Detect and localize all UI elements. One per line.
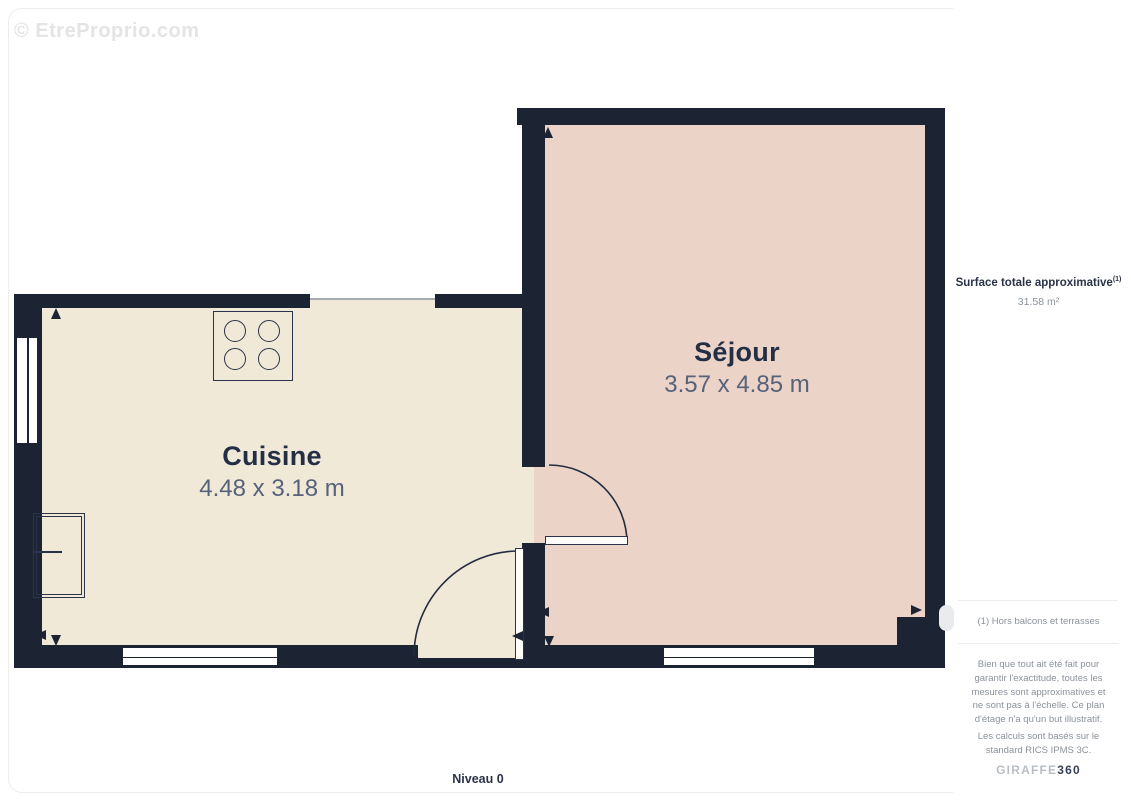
room-name: Séjour	[607, 337, 867, 368]
burner-icon	[258, 348, 280, 370]
wall-partition-lower	[522, 543, 545, 668]
door-threshold	[418, 658, 517, 668]
info-sidebar: Surface totale approximative(1) 31.58 m²…	[953, 8, 1124, 793]
door-leaf-icon	[515, 548, 524, 660]
footnote-ref: (1)	[1113, 276, 1122, 283]
marker-triangle-icon	[543, 127, 553, 138]
surface-total-label: Surface totale approximative(1)	[953, 276, 1124, 289]
wall-sejour-top	[517, 108, 945, 125]
window-icon	[663, 647, 815, 666]
level-label: Niveau 0	[0, 772, 956, 786]
room-label-sejour: Séjour 3.57 x 4.85 m	[607, 337, 867, 399]
appliance-handle-line	[33, 551, 62, 553]
marker-triangle-icon	[51, 635, 61, 646]
wall-kitchen-top-left	[14, 294, 310, 308]
marker-triangle-icon	[35, 630, 46, 640]
burner-icon	[224, 348, 246, 370]
burner-icon	[224, 320, 246, 342]
door-leaf-icon	[545, 536, 628, 545]
logo-text-360: 360	[1057, 763, 1081, 777]
marker-triangle-icon	[911, 605, 922, 615]
appliance-icon	[33, 513, 85, 598]
room-dimensions: 4.48 x 3.18 m	[142, 475, 402, 503]
surface-total-block: Surface totale approximative(1) 31.58 m²	[953, 276, 1124, 308]
disclaimer-text: Bien que tout ait été fait pour garantir…	[966, 658, 1111, 727]
marker-triangle-icon	[538, 607, 549, 617]
standards-text: Les calculs sont basés sur le standard R…	[966, 730, 1111, 758]
divider	[958, 643, 1118, 644]
sidebar-handle[interactable]	[939, 605, 954, 631]
wall-sejour-corner-notch	[897, 617, 945, 668]
giraffe360-logo: GIRAFFE360	[953, 763, 1124, 777]
marker-triangle-icon	[512, 631, 523, 641]
wall-sejour-right	[925, 108, 945, 617]
watermark-logo: © EtreProprio.com	[14, 20, 200, 43]
room-name: Cuisine	[142, 441, 402, 472]
footnote-text: (1) Hors balcons et terrasses	[953, 616, 1124, 627]
appliance-inner-outline	[36, 516, 82, 595]
wall-opening-line	[310, 298, 435, 300]
window-icon	[122, 647, 278, 666]
window-icon	[16, 337, 38, 444]
surface-total-value: 31.58 m²	[953, 296, 1124, 308]
burner-icon	[258, 320, 280, 342]
room-label-cuisine: Cuisine 4.48 x 3.18 m	[142, 441, 402, 503]
wall-kitchen-top-right	[435, 294, 522, 308]
room-dimensions: 3.57 x 4.85 m	[607, 371, 867, 399]
marker-triangle-icon	[51, 308, 61, 319]
logo-text-giraffe: GIRAFFE	[996, 763, 1057, 777]
doorway-floor-sejour-side	[534, 467, 545, 543]
divider	[958, 600, 1118, 601]
wall-partition-upper	[522, 108, 545, 467]
floorplan-page: © EtreProprio.com Cu	[0, 0, 1131, 800]
stove-hob-icon	[213, 311, 293, 381]
marker-triangle-icon	[544, 636, 554, 647]
